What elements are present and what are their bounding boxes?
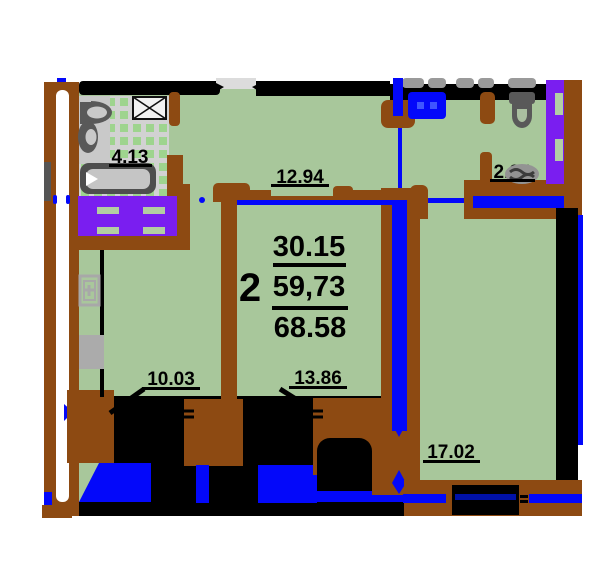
svg-text:2: 2 [239,266,261,310]
svg-text:10.03: 10.03 [147,369,195,390]
svg-text:30.15: 30.15 [273,231,346,263]
svg-text:13.86: 13.86 [294,368,342,389]
svg-text:59,73: 59,73 [273,271,346,303]
svg-text:17.02: 17.02 [427,442,475,463]
svg-text:68.58: 68.58 [274,312,347,344]
